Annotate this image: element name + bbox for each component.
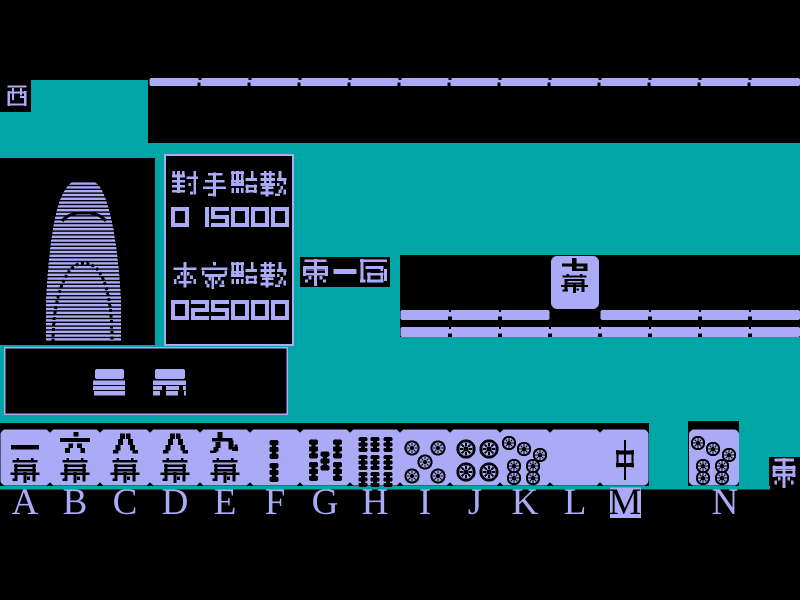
svg-text:D: D xyxy=(162,482,189,523)
svg-text:A: A xyxy=(12,482,39,523)
svg-text:I: I xyxy=(419,482,431,523)
svg-text:C: C xyxy=(113,482,138,523)
svg-text:N: N xyxy=(712,482,739,523)
svg-text:J: J xyxy=(468,482,482,523)
svg-text:B: B xyxy=(63,482,88,523)
svg-text:K: K xyxy=(512,482,539,523)
svg-text:E: E xyxy=(214,482,237,523)
svg-text:F: F xyxy=(265,482,286,523)
svg-text:H: H xyxy=(362,482,389,523)
svg-text:M: M xyxy=(609,482,642,523)
svg-text:L: L xyxy=(564,482,587,523)
svg-text:G: G xyxy=(312,482,339,523)
